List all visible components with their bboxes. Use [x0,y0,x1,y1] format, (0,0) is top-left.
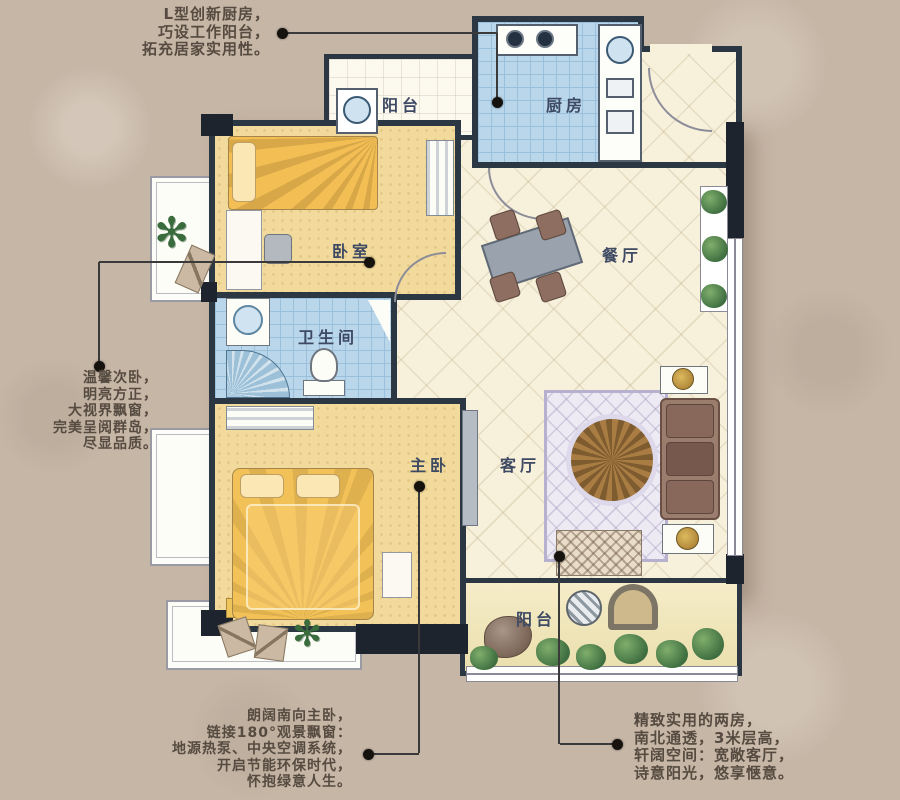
washbasin-icon [233,305,263,335]
leader-dot [612,739,623,750]
counter-appliance [606,110,634,134]
plant-icon [656,640,688,668]
leader-dot [414,481,425,492]
leader-dot [363,749,374,760]
sink-icon [606,36,634,64]
window-balcony-bottom [466,666,738,682]
annotation-line: 地源热泵、中央空调系统， [82,741,352,758]
round-table-fan-icon [566,414,658,506]
arch-planter-icon [608,584,658,630]
plant-icon [470,646,498,670]
bench-hatch [556,530,642,576]
annotation-line: 轩阔空间：宽敞客厅， [634,747,884,765]
fan-vent-icon [566,590,602,626]
room-label-balcony-top: 阳台 [382,92,422,116]
burner-icon [536,30,554,48]
wall-pier [726,554,744,584]
annotation-bedroom: 温馨次卧， 明亮方正， 大视界飘窗， 完美呈阅群岛， 尽显品质。 [8,370,158,453]
annotation-line: 尽显品质。 [8,436,158,453]
annotation-line: 链接180°观景飘窗： [82,725,352,742]
sofa-cushion [666,480,714,514]
leader-line-master [372,753,419,755]
plant-icon [701,190,727,214]
sofa-cushion [666,404,714,438]
annotation-line: 诗意阳光，悠享惬意。 [634,765,884,783]
annotation-kitchen: L型创新厨房， 巧设工作阳台， 拓充居家实用性。 [120,6,270,59]
leader-dot [492,97,503,108]
plant-icon [701,284,727,308]
bedside-table [382,552,412,598]
plant-icon: ✻ [292,614,322,655]
annotation-line: 怀抱绿意人生。 [82,774,352,791]
lamp-icon [672,368,694,390]
annotation-line: 开启节能环保时代， [82,758,352,775]
plant-icon [536,638,570,666]
plant-icon [614,634,648,664]
sofa-cushion [666,442,714,476]
plant-icon [702,236,728,262]
room-label-dining: 餐厅 [602,242,642,266]
leader-line-layout [560,743,614,745]
desk-second-bedroom [226,210,262,290]
leader-line-kitchen [496,33,498,99]
toilet-tank [303,380,345,396]
annotation-line: 明亮方正， [8,387,158,404]
pillow [240,474,284,498]
leader-line-layout [558,557,560,744]
wardrobe-second-bedroom [426,140,454,216]
leader-line-kitchen [283,32,497,34]
annotation-line: 巧设工作阳台， [120,24,270,42]
blanket-master [246,504,360,610]
annotation-line: 拓充居家实用性。 [120,41,270,59]
wardrobe-master [226,406,314,430]
annotation-master: 朗阔南向主卧， 链接180°观景飘窗： 地源热泵、中央空调系统， 开启节能环保时… [82,708,352,791]
plant-icon: ✻ [154,208,189,257]
entry-door-opening [650,44,712,54]
annotation-line: 南北通透，3米层高， [634,730,884,748]
leader-dot [554,551,565,562]
wall-pier [726,160,744,238]
tv-cabinet [462,410,478,526]
lamp-icon [676,527,699,550]
room-label-master-bedroom: 主卧 [410,452,450,476]
bathroom-door [368,300,390,342]
toilet-bowl-icon [310,348,338,382]
room-label-balcony-bottom: 阳台 [516,606,556,630]
annotation-line: 温馨次卧， [8,370,158,387]
burner-icon [506,30,524,48]
room-label-bathroom: 卫生间 [298,324,358,348]
annotation-line: 大视界飘窗， [8,403,158,420]
annotation-line: 精致实用的两房， [634,712,884,730]
room-label-kitchen: 厨房 [546,92,586,116]
floorplan-page: ✻ ✻ 阳台 厨房 卧室 餐厅 卫生间 主卧 客厅 阳台 L型创新厨房， 巧设工… [0,0,900,800]
chair-second-bedroom [264,234,292,264]
leader-line-bedroom [98,262,100,363]
wall-pier [201,114,233,136]
leader-line-bedroom [99,261,365,263]
window-right-wall [727,238,743,556]
pillow [296,474,340,498]
annotation-line: 朗阔南向主卧， [82,708,352,725]
annotation-layout: 精致实用的两房， 南北通透，3米层高， 轩阔空间：宽敞客厅， 诗意阳光，悠享惬意… [634,712,884,783]
annotation-line: 完美呈阅群岛， [8,420,158,437]
pillow [232,142,256,202]
annotation-line: L型创新厨房， [120,6,270,24]
washing-machine-drum-icon [343,96,371,124]
leader-dot [364,257,375,268]
room-label-living: 客厅 [500,452,540,476]
wall-pier [356,624,468,654]
plant-icon [576,644,606,670]
wall-pier [201,282,217,302]
leader-dot [277,28,288,39]
counter-appliance [606,78,634,98]
bay-window-lower-left [150,428,216,566]
plant-icon [692,628,724,660]
lounge-chair-icon [254,624,288,662]
leader-line-master [418,487,420,753]
bay-window-frame [156,434,210,558]
